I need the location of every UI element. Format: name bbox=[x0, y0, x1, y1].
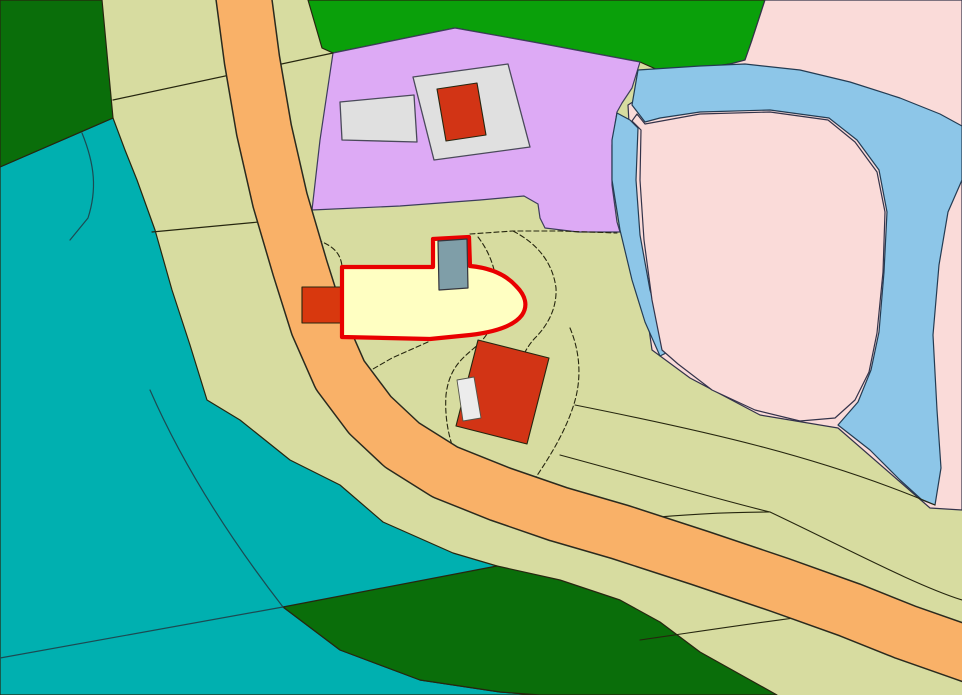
building-gray-blue[interactable] bbox=[438, 239, 468, 290]
building-pad-corridor[interactable] bbox=[340, 95, 417, 142]
cadastral-map-canvas[interactable] bbox=[0, 0, 962, 695]
building-red-north[interactable] bbox=[437, 83, 486, 141]
map-viewport[interactable] bbox=[0, 0, 962, 695]
building-red-west-annex[interactable] bbox=[302, 287, 342, 323]
